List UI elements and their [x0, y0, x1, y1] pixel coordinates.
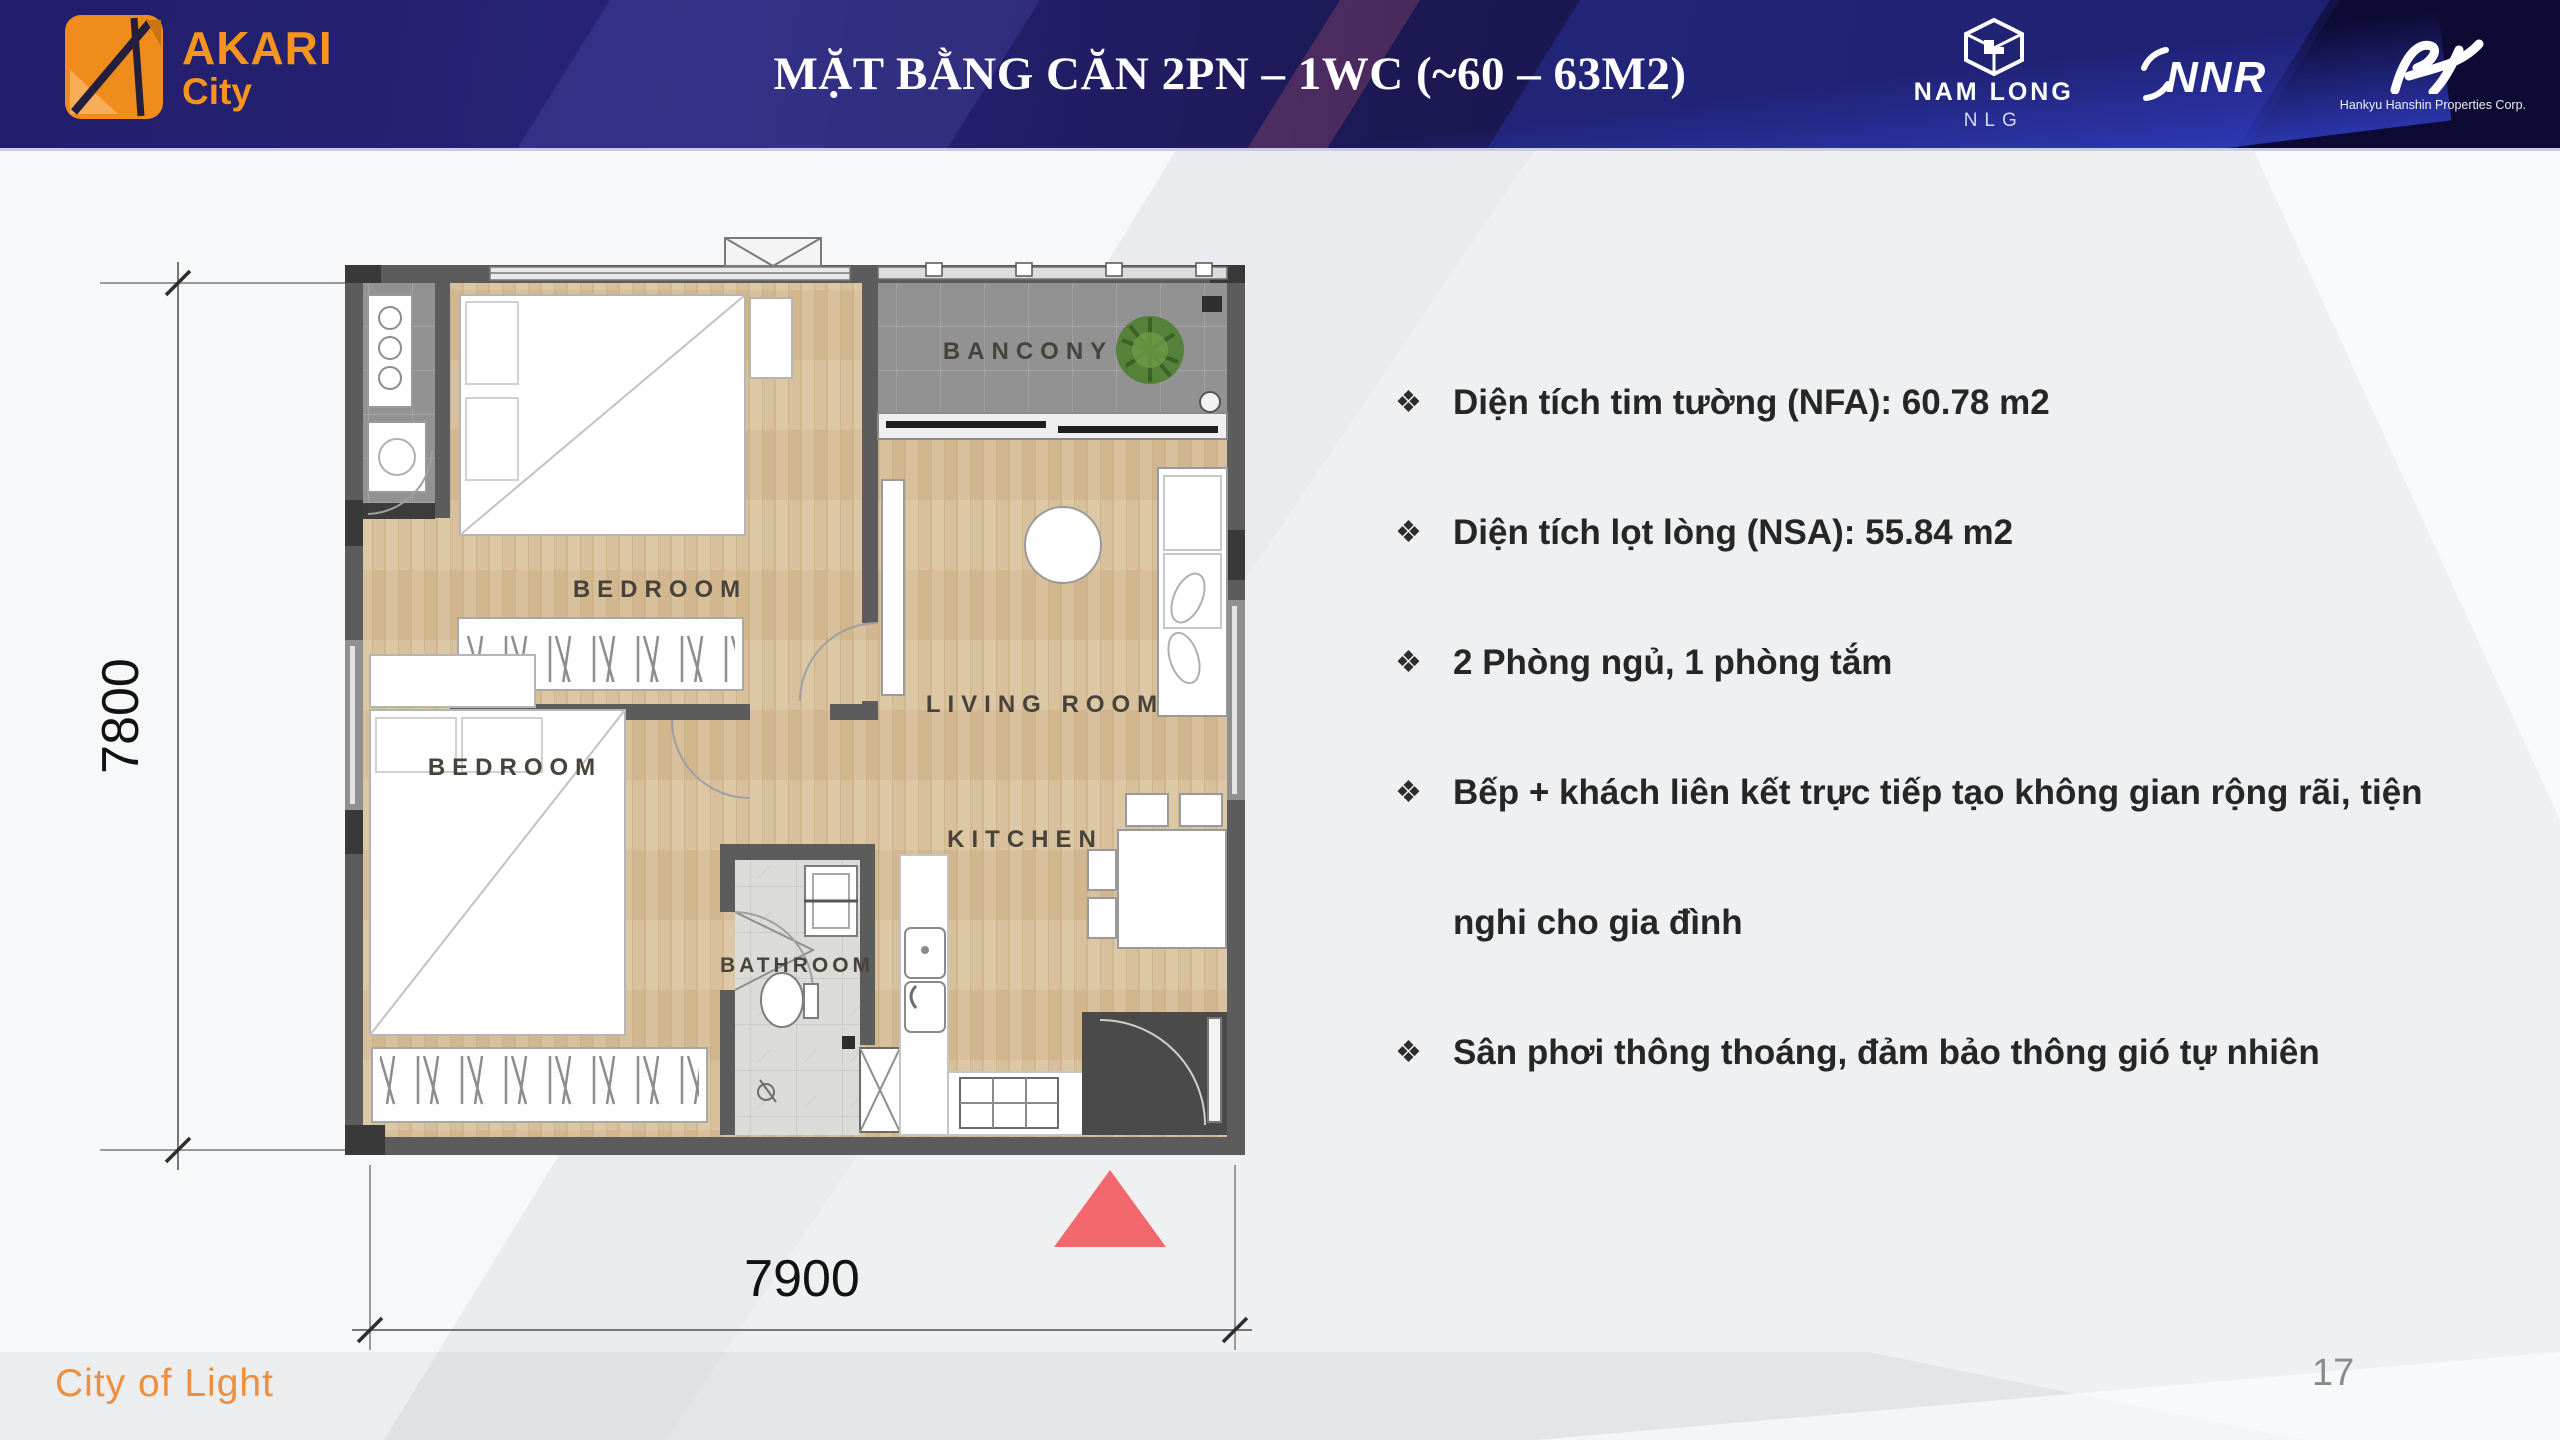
entrance-door — [1208, 1018, 1221, 1122]
bullet-icon: ❖ — [1395, 988, 1453, 1118]
namlong-name: NAM LONG — [1914, 78, 2074, 107]
bullet-text: Diện tích lọt lòng (NSA): 55.84 m2 — [1453, 468, 2443, 598]
slide: AKARI City MẶT BẰNG CĂN 2PN – 1WC (~60 –… — [0, 0, 2560, 1440]
round-table — [1025, 507, 1101, 583]
bullet-icon: ❖ — [1395, 468, 1453, 598]
dimension-height: 7800 — [92, 262, 352, 1170]
hankyu-h-icon — [2373, 36, 2493, 94]
bullet-icon: ❖ — [1395, 338, 1453, 468]
nnr-logo: NNR — [2132, 38, 2282, 110]
partner-logos: NAM LONG NLG NNR Hankyu Hanshin Properti… — [1914, 8, 2526, 140]
dim-height-label: 7800 — [92, 658, 150, 774]
bullet-text: Sân phơi thông thoáng, đảm bảo thông gió… — [1453, 988, 2443, 1118]
list-item: ❖ Bếp + khách liên kết trực tiếp tạo khô… — [1395, 728, 2495, 988]
kitchen-label: KITCHEN — [947, 826, 1103, 853]
nnr-text: NNR — [2166, 53, 2267, 102]
dim-width-label: 7900 — [744, 1250, 860, 1308]
balcony-label: BANCONY — [943, 338, 1113, 365]
list-item: ❖ Diện tích lọt lòng (NSA): 55.84 m2 — [1395, 468, 2495, 598]
floor-plan: 7800 — [60, 150, 1300, 1410]
direction-triangle — [1054, 1170, 1166, 1247]
living-room-label: LIVING ROOM — [926, 691, 1164, 718]
namlong-cube-icon — [1958, 16, 2030, 78]
bedroom-1-label: BEDROOM — [573, 576, 747, 603]
hankyu-logo: Hankyu Hanshin Properties Corp. — [2340, 36, 2526, 112]
bathroom: BATHROOM — [720, 844, 900, 1135]
nnr-icon: NNR — [2132, 38, 2282, 110]
list-item: ❖ Diện tích tim tường (NFA): 60.78 m2 — [1395, 338, 2495, 468]
page-title: MẶT BẰNG CĂN 2PN – 1WC (~60 – 63M2) — [560, 0, 1900, 148]
bullet-icon: ❖ — [1395, 598, 1453, 728]
namlong-sub: NLG — [1964, 110, 2024, 132]
utility-room — [363, 283, 450, 519]
bullet-text: Diện tích tim tường (NFA): 60.78 m2 — [1453, 338, 2443, 468]
bullet-icon: ❖ — [1395, 728, 1453, 858]
list-item: ❖ Sân phơi thông thoáng, đảm bảo thông g… — [1395, 988, 2495, 1118]
akari-logo: AKARI City — [62, 12, 333, 122]
feature-list: ❖ Diện tích tim tường (NFA): 60.78 m2 ❖ … — [1395, 338, 2495, 1118]
tagline: City of Light — [55, 1362, 274, 1406]
tv-cabinet — [882, 480, 904, 695]
hankyu-text: Hankyu Hanshin Properties Corp. — [2340, 98, 2526, 112]
dining-table — [1118, 830, 1226, 948]
bathroom-label: BATHROOM — [720, 954, 874, 977]
balcony: BANCONY — [878, 263, 1227, 439]
page-number: 17 — [2312, 1352, 2354, 1395]
list-item: ❖ 2 Phòng ngủ, 1 phòng tắm — [1395, 598, 2495, 728]
header: AKARI City MẶT BẰNG CĂN 2PN – 1WC (~60 –… — [0, 0, 2560, 151]
brand-sub: City — [182, 73, 333, 110]
toilet — [761, 973, 803, 1027]
namlong-logo: NAM LONG NLG — [1914, 16, 2074, 132]
bullet-text: 2 Phòng ngủ, 1 phòng tắm — [1453, 598, 2443, 728]
bedroom-2-label: BEDROOM — [428, 754, 602, 781]
akari-logo-icon — [62, 12, 166, 122]
brand-name: AKARI — [182, 25, 333, 71]
bullet-text: Bếp + khách liên kết trực tiếp tạo không… — [1453, 728, 2443, 988]
